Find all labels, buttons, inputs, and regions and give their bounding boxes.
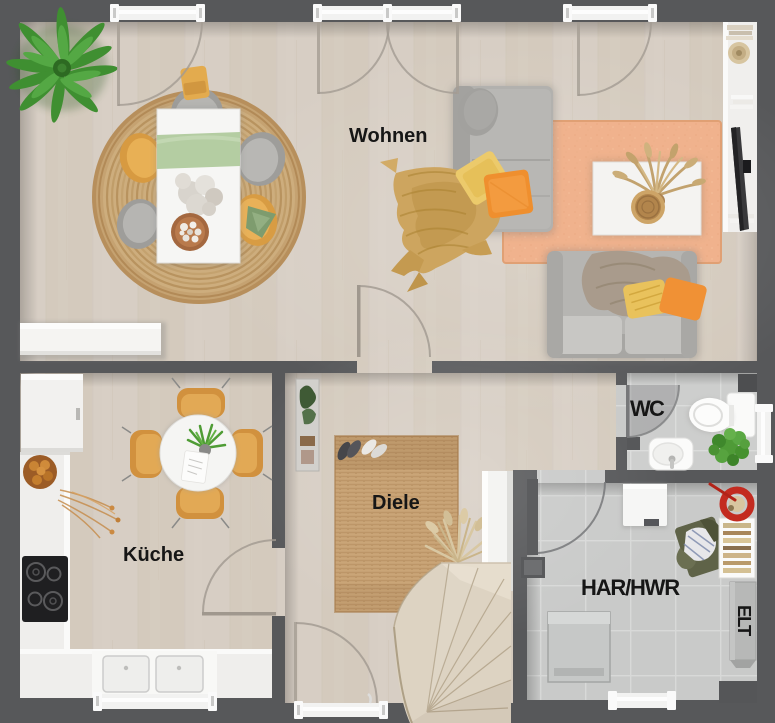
svg-text:Diele: Diele: [372, 492, 420, 514]
svg-text:HAR/HWR: HAR/HWR: [581, 575, 680, 600]
svg-text:Küche: Küche: [123, 544, 184, 566]
svg-text:ELT: ELT: [734, 605, 755, 637]
svg-text:Wohnen: Wohnen: [349, 125, 428, 147]
svg-text:WC: WC: [630, 396, 665, 421]
